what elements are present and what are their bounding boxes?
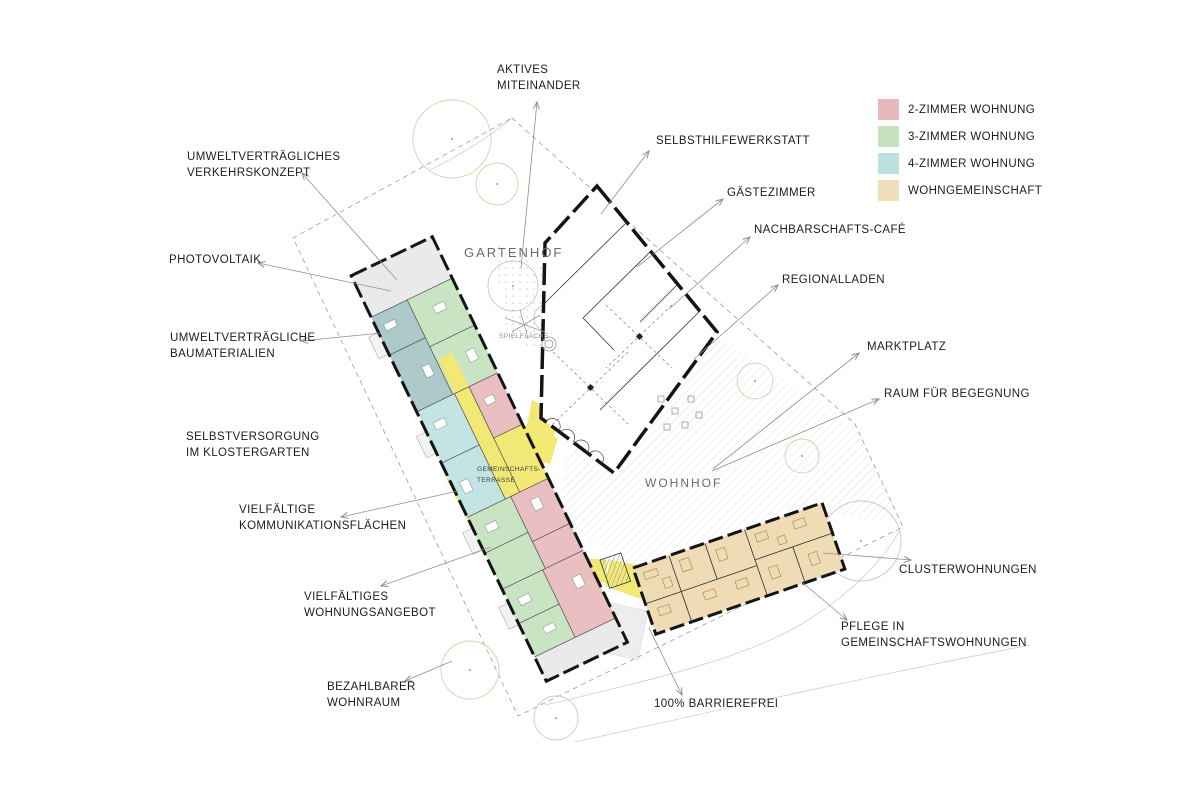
site-plan-page: { "legend": { "items": [ {"label": "2-ZI… <box>0 0 1200 800</box>
legend-item-2zimmer: 2-ZIMMER WOHNUNG <box>878 99 1042 120</box>
legend-item-4zimmer: 4-ZIMMER WOHNUNG <box>878 153 1042 174</box>
legend-item-wohngemeinschaft: WOHNGEMEINSCHAFT <box>878 180 1042 201</box>
legend-label-3zimmer: 3-ZIMMER WOHNUNG <box>908 131 1035 143</box>
annotation-aktives-miteinander: AKTIVES MITEINANDER <box>497 62 581 94</box>
annotation-selbsthilfewerkstatt: SELBSTHILFEWERKSTATT <box>656 133 810 149</box>
plan-label-wohnhof: WOHNHOF <box>645 476 722 490</box>
legend-label-2zimmer: 2-ZIMMER WOHNUNG <box>908 104 1035 116</box>
legend-swatch-4zimmer <box>878 153 899 174</box>
annotation-marktplatz: MARKTPLATZ <box>867 339 946 355</box>
legend: 2-ZIMMER WOHNUNG 3-ZIMMER WOHNUNG 4-ZIMM… <box>878 99 1042 207</box>
annotation-barrierefrei: 100% BARRIEREFREI <box>654 696 778 712</box>
annotation-baumaterialien: UMWELTVERTRÄGLICHE BAUMATERIALIEN <box>170 330 315 362</box>
annotation-selbstversorgung: SELBSTVERSORGUNG IM KLOSTERGARTEN <box>186 429 320 461</box>
plan-label-spielflaeche: SPIELFLÄCHE <box>499 333 549 340</box>
legend-swatch-2zimmer <box>878 99 899 120</box>
legend-swatch-3zimmer <box>878 126 899 147</box>
legend-swatch-wohngemeinschaft <box>878 180 899 201</box>
annotation-raum-fuer-begegnung: RAUM FÜR BEGEGNUNG <box>884 386 1030 402</box>
annotation-wohnungsangebot: VIELFÄLTIGES WOHNUNGSANGEBOT <box>304 589 436 621</box>
legend-item-3zimmer: 3-ZIMMER WOHNUNG <box>878 126 1042 147</box>
annotation-clusterwohnungen: CLUSTERWOHNUNGEN <box>899 562 1037 578</box>
plan-label-gemeinschaftsterrasse: GEMEINSCHAFTS- TERRASSE <box>477 464 541 486</box>
plan-label-gartenhof: GARTENHOF <box>464 245 563 260</box>
annotation-pflege: PFLEGE IN GEMEINSCHAFTSWOHNUNGEN <box>841 619 1027 651</box>
annotation-verkehrskonzept: UMWELTVERTRÄGLICHES VERKEHRSKONZEPT <box>187 149 341 181</box>
annotation-bezahlbarer-wohnraum: BEZAHLBARER WOHNRAUM <box>327 679 416 711</box>
legend-label-wohngemeinschaft: WOHNGEMEINSCHAFT <box>908 185 1042 197</box>
annotation-regionalladen: REGIONALLADEN <box>782 272 885 288</box>
legend-label-4zimmer: 4-ZIMMER WOHNUNG <box>908 158 1035 170</box>
annotation-photovoltaik: PHOTOVOLTAIK <box>169 252 261 268</box>
annotation-nachbarschafts-cafe: NACHBARSCHAFTS-CAFÉ <box>754 222 906 238</box>
annotation-kommunikationsflaechen: VIELFÄLTIGE KOMMUNIKATIONSFLÄCHEN <box>239 502 406 534</box>
annotation-gaestezimmer: GÄSTEZIMMER <box>727 185 816 201</box>
